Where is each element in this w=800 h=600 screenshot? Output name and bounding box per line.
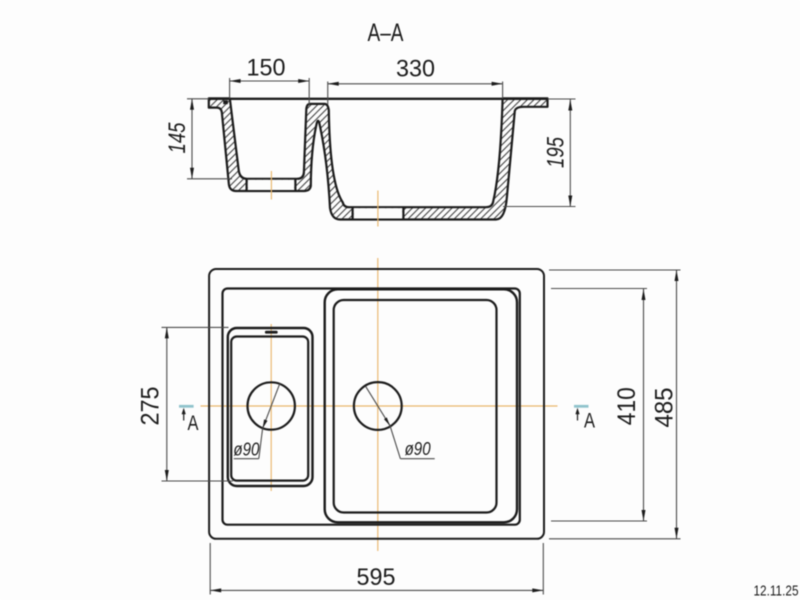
svg-text:ø90: ø90 — [405, 439, 431, 459]
svg-text:145: 145 — [164, 122, 191, 154]
svg-text:150: 150 — [247, 55, 286, 82]
svg-text:12.11.25: 12.11.25 — [754, 584, 799, 600]
svg-text:275: 275 — [137, 387, 165, 426]
svg-text:410: 410 — [613, 387, 641, 425]
svg-text:A: A — [188, 412, 199, 435]
svg-text:195: 195 — [543, 136, 570, 168]
svg-text:ø90: ø90 — [233, 440, 259, 460]
svg-text:A–A: A–A — [368, 19, 404, 47]
svg-text:485: 485 — [651, 388, 679, 428]
svg-text:330: 330 — [396, 56, 435, 83]
svg-text:595: 595 — [357, 564, 396, 591]
svg-text:A: A — [584, 410, 595, 433]
